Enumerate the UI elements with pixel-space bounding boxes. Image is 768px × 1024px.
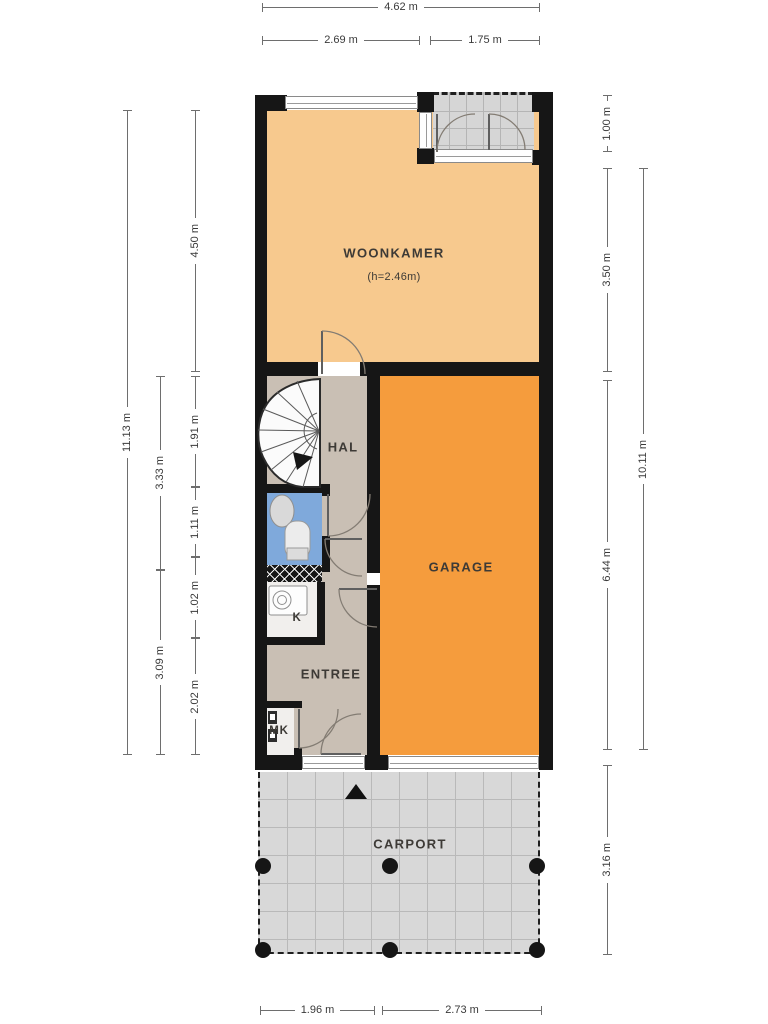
toilet-floor <box>267 493 322 565</box>
meter-closet-label: MK <box>269 725 289 737</box>
dim-left-inner-2: 1.91 m <box>188 376 202 487</box>
entree-label: ENTREE <box>301 667 362 682</box>
dim-top-overall: 4.62 m <box>262 0 540 20</box>
woonkamer-height-note: (h=2.46m) <box>367 271 420 283</box>
porch-door-window-band <box>434 149 533 163</box>
porch-post-top-left <box>417 92 434 112</box>
dim-top-right: 1.75 m <box>430 33 540 47</box>
dim-bottom-left: 1.96 m <box>260 1003 375 1017</box>
dim-top-left: 2.69 m <box>262 33 420 47</box>
front-door-band <box>302 756 365 769</box>
wall-right-outer <box>539 92 553 770</box>
wall-entree-garage-lower <box>367 585 380 755</box>
porch-post-bottom-right <box>532 150 553 165</box>
wall-toilet-top <box>267 484 330 493</box>
wall-toilet-right-upper <box>322 484 330 496</box>
wall-kitchen-closet-right <box>317 582 325 640</box>
porch-side-window <box>419 112 432 149</box>
dim-left-inner-1: 4.50 m <box>188 110 202 372</box>
hal-label: HAL <box>328 440 359 455</box>
woonkamer-window <box>285 96 418 109</box>
dim-left-inner-4: 1.02 m <box>188 557 202 638</box>
wall-bottom-left <box>255 755 302 770</box>
garage-label: GARAGE <box>429 560 494 575</box>
kitchen-closet-label: K <box>292 612 301 624</box>
wall-left-outer <box>255 95 267 770</box>
wall-top-left-corner <box>255 95 287 111</box>
wall-woonkamer-garage <box>360 362 539 376</box>
porch-floor <box>433 92 534 150</box>
dim-left-mid-1: 3.33 m <box>153 376 167 570</box>
dim-left-mid-2: 3.09 m <box>153 570 167 755</box>
garage-door-band <box>388 756 539 769</box>
kitchen-closet-floor <box>267 582 317 637</box>
dim-left-overall: 11.13 m <box>120 110 134 755</box>
floor-plan: WOONKAMER (h=2.46m) HAL GARAGE ENTREE K … <box>0 0 768 1024</box>
dim-left-inner-5: 2.02 m <box>188 638 202 755</box>
wall-toilet-right-lower <box>322 536 330 572</box>
porch-post-bottom-left <box>417 148 434 164</box>
wall-woonkamer-hal-left <box>267 362 318 376</box>
wall-meter-closet-top <box>267 701 302 708</box>
carport-label: CARPORT <box>373 837 446 852</box>
dim-right-inner-4: 3.16 m <box>600 765 614 955</box>
wall-bottom-mid-post <box>365 755 388 770</box>
dim-bottom-right: 2.73 m <box>382 1003 542 1017</box>
carport-floor <box>258 772 540 954</box>
woonkamer-label: WOONKAMER <box>343 246 444 261</box>
dim-right-overall: 10.11 m <box>636 168 650 750</box>
dim-right-inner-3: 6.44 m <box>600 380 614 750</box>
duct-hatched-strip <box>267 565 322 582</box>
porch-post-top-right <box>532 92 553 112</box>
dim-right-inner-1: 1.00 m <box>600 95 614 152</box>
dim-left-inner-3: 1.11 m <box>188 487 202 557</box>
dim-right-inner-2: 3.50 m <box>600 168 614 372</box>
wall-kitchen-closet-bottom <box>267 637 325 645</box>
wall-hal-garage-upper <box>367 376 380 573</box>
